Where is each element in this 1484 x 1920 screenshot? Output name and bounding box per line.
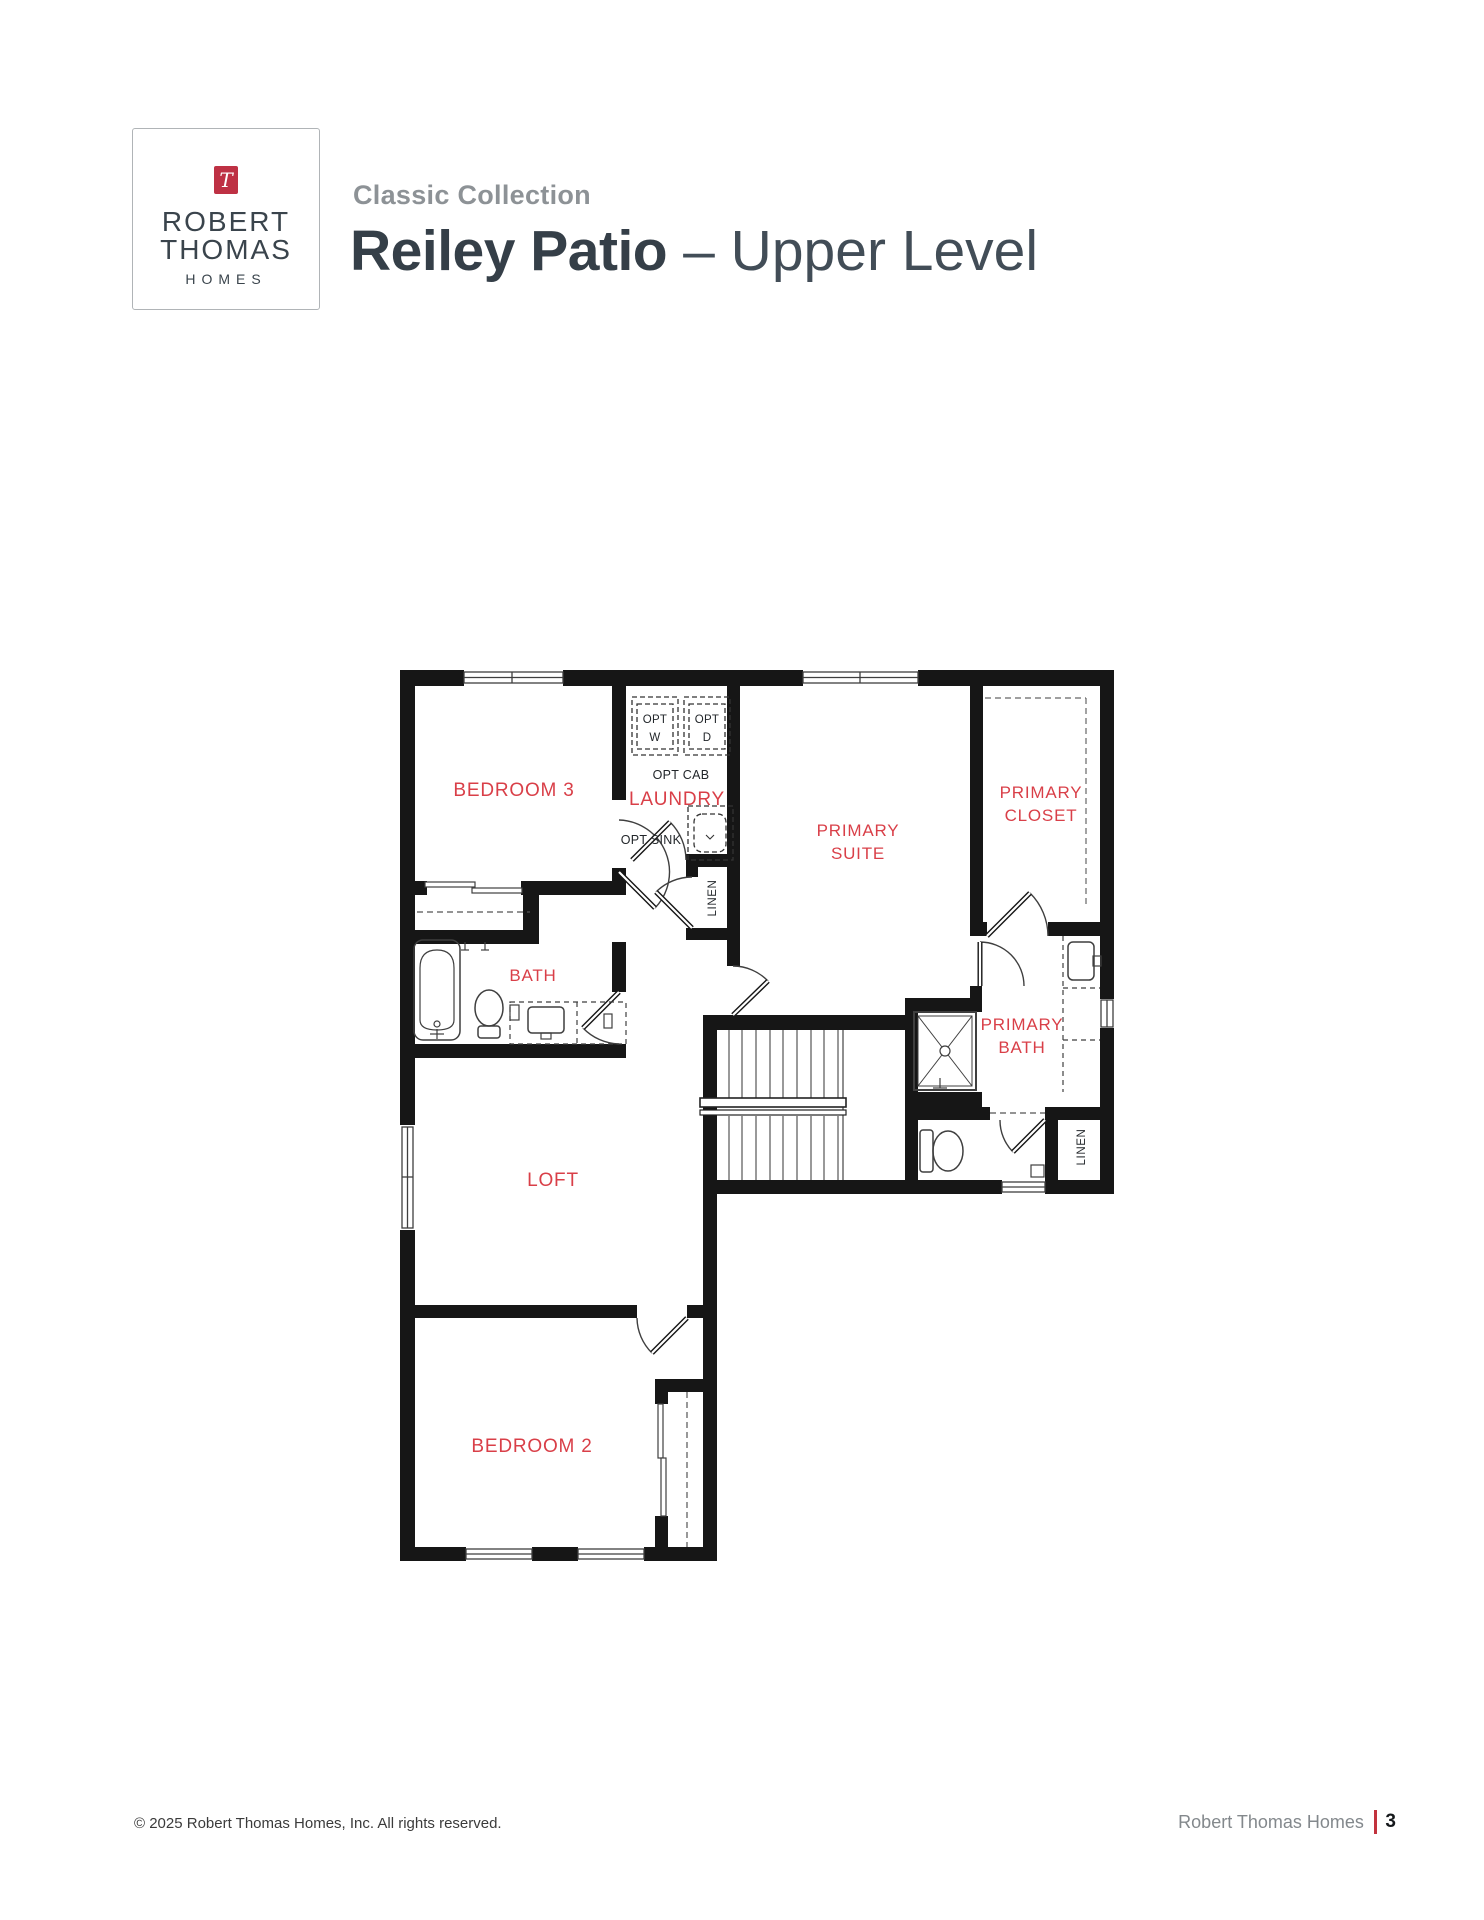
floor-plan: BEDROOM 3 LAUNDRY PRIMARY SUITE PRIMARY … <box>390 655 1130 1575</box>
footer-brand-block: Robert Thomas Homes 3 <box>1178 1810 1396 1834</box>
stairs-icon <box>700 1030 846 1180</box>
window-icon-bedroom2-right <box>578 1549 644 1559</box>
stair-railing <box>700 1098 846 1115</box>
room-label-primary-closet-2: CLOSET <box>1005 806 1078 825</box>
room-label-primary-bath-1: PRIMARY <box>981 1015 1064 1034</box>
label-linen-primary: LINEN <box>1076 1129 1088 1166</box>
label-opt-cab: OPT CAB <box>653 768 710 782</box>
room-label-laundry: LAUNDRY <box>629 789 725 810</box>
shower-icon <box>914 1012 976 1090</box>
window-icon-primary-suite <box>803 672 918 683</box>
bifold-door-icon <box>658 1404 666 1516</box>
brochure-page: T ROBERT THOMAS HOMES Classic Collection… <box>0 0 1484 1920</box>
laundry-sink-icon <box>688 806 733 860</box>
label-opt-washer-2: W <box>649 732 660 744</box>
label-opt-sink: OPT SINK <box>621 833 682 847</box>
fixtures <box>414 697 1101 1547</box>
window-icon-bedroom3 <box>464 672 563 683</box>
logo-name-line3: HOMES <box>185 271 266 287</box>
plan-name: Reiley Patio <box>350 219 667 283</box>
room-label-bath: BATH <box>509 966 556 985</box>
footer-brand-name: Robert Thomas Homes <box>1178 1812 1364 1833</box>
room-label-loft: LOFT <box>527 1170 579 1191</box>
dryer-icon <box>684 697 730 755</box>
washer-icon <box>632 697 678 755</box>
stair-treads-lower <box>729 1116 838 1180</box>
copyright-text: © 2025 Robert Thomas Homes, Inc. All rig… <box>134 1815 502 1832</box>
room-label-bedroom2: BEDROOM 2 <box>471 1436 592 1457</box>
collection-label: Classic Collection <box>353 180 591 211</box>
label-linen-hall: LINEN <box>707 880 719 917</box>
label-opt-dryer-1: OPT <box>695 714 720 726</box>
closet-shelf-dashes <box>985 698 1086 908</box>
logo-name-line2: THOMAS <box>160 236 292 264</box>
room-label-primary-suite-2: SUITE <box>831 844 885 863</box>
label-opt-washer-1: OPT <box>643 714 668 726</box>
vanity-sink-icon-primary <box>1063 936 1101 1092</box>
robert-thomas-homes-logo: T ROBERT THOMAS HOMES <box>132 128 320 310</box>
footer-divider-bar <box>1374 1810 1378 1834</box>
bathtub-icon <box>414 940 460 1040</box>
window-icon-bedroom2-left <box>466 1549 532 1559</box>
label-opt-dryer-2: D <box>703 732 712 744</box>
stair-treads-upper <box>729 1030 838 1098</box>
page-number: 3 <box>1385 1811 1396 1833</box>
plan-level: – Upper Level <box>683 219 1038 283</box>
logo-monogram-icon: T <box>214 166 238 194</box>
option-labels: OPT W OPT D OPT CAB OPT SINK <box>621 714 720 847</box>
room-label-bedroom3: BEDROOM 3 <box>453 780 574 801</box>
toilet-icon-bath <box>475 990 503 1038</box>
logo-monogram-letter: T <box>219 170 232 190</box>
room-label-primary-closet-1: PRIMARY <box>1000 783 1083 802</box>
logo-name-line1: ROBERT <box>162 208 290 236</box>
room-label-primary-suite-1: PRIMARY <box>817 821 900 840</box>
window-icon-loft <box>402 1127 413 1228</box>
room-label-primary-bath-2: BATH <box>998 1038 1045 1057</box>
page-title: Reiley Patio– Upper Level <box>350 218 1038 284</box>
closet-slider-doors <box>425 882 522 893</box>
window-icon-toilet-room <box>1002 1182 1045 1192</box>
window-icon-primary-bath <box>1101 1000 1113 1027</box>
vanity-sink-icon-bath <box>510 1002 626 1044</box>
